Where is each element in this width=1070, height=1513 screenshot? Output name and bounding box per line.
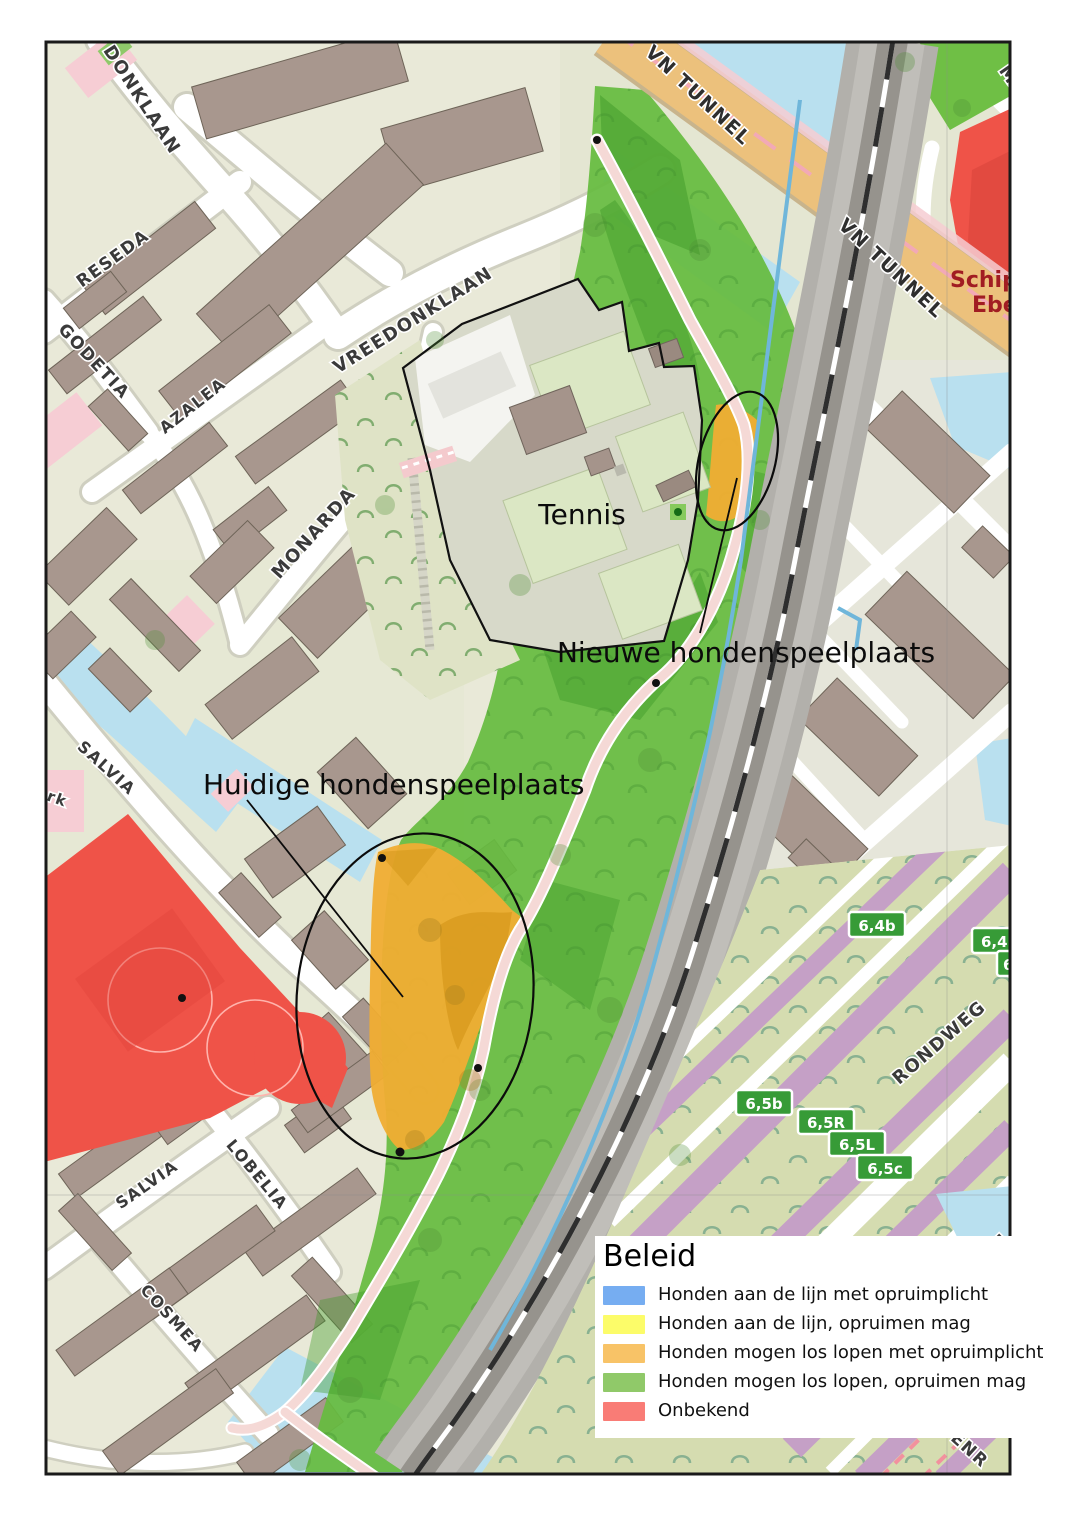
legend-item-unknown: Onbekend <box>603 1397 1043 1426</box>
badge-64r: 6,4R <box>972 928 1028 953</box>
svg-text:6: 6 <box>1003 956 1013 974</box>
new-area-label: Nieuwe hondenspeelplaats <box>557 636 935 669</box>
badge-6-partial: 6 <box>997 951 1053 976</box>
legend-swatch-red <box>603 1402 645 1421</box>
current-area-label: Huidige hondenspeelplaats <box>203 768 584 801</box>
legend-swatch-orange <box>603 1344 645 1363</box>
legend-swatch-green <box>603 1373 645 1392</box>
map-figure: DONKLAAN RESEDA GODETIA AZALEA VREEDONKL… <box>0 0 1070 1513</box>
legend-item-loose-optional: Honden mogen los lopen, opruimen mag <box>603 1368 1043 1397</box>
svg-text:6,5c: 6,5c <box>867 1160 902 1178</box>
legend-panel: Beleid Honden aan de lijn met opruimplic… <box>595 1236 1057 1438</box>
svg-text:6,5R: 6,5R <box>807 1114 846 1132</box>
legend-swatch-blue <box>603 1286 645 1305</box>
legend-item-loose-cleanup: Honden mogen los lopen met opruimplicht <box>603 1339 1043 1368</box>
legend-item-leash-cleanup: Honden aan de lijn met opruimplicht <box>603 1281 1043 1310</box>
svg-text:6,5b: 6,5b <box>745 1095 783 1113</box>
tennis-label: Tennis <box>537 498 625 531</box>
legend-title: Beleid <box>603 1240 1043 1275</box>
badge-65b: 6,5b <box>736 1090 792 1115</box>
svg-text:6,5L: 6,5L <box>839 1136 876 1154</box>
badge-65c: 6,5c <box>857 1155 913 1180</box>
legend-swatch-yellow <box>603 1315 645 1334</box>
svg-text:6,4b: 6,4b <box>858 917 896 935</box>
legend-item-leash-optional: Honden aan de lijn, opruimen mag <box>603 1310 1043 1339</box>
badge-65l: 6,5L <box>829 1131 885 1156</box>
badge-64b: 6,4b <box>849 912 905 937</box>
place-schipp-line1: Schipp <box>950 268 1034 293</box>
svg-text:6,4R: 6,4R <box>981 933 1020 951</box>
